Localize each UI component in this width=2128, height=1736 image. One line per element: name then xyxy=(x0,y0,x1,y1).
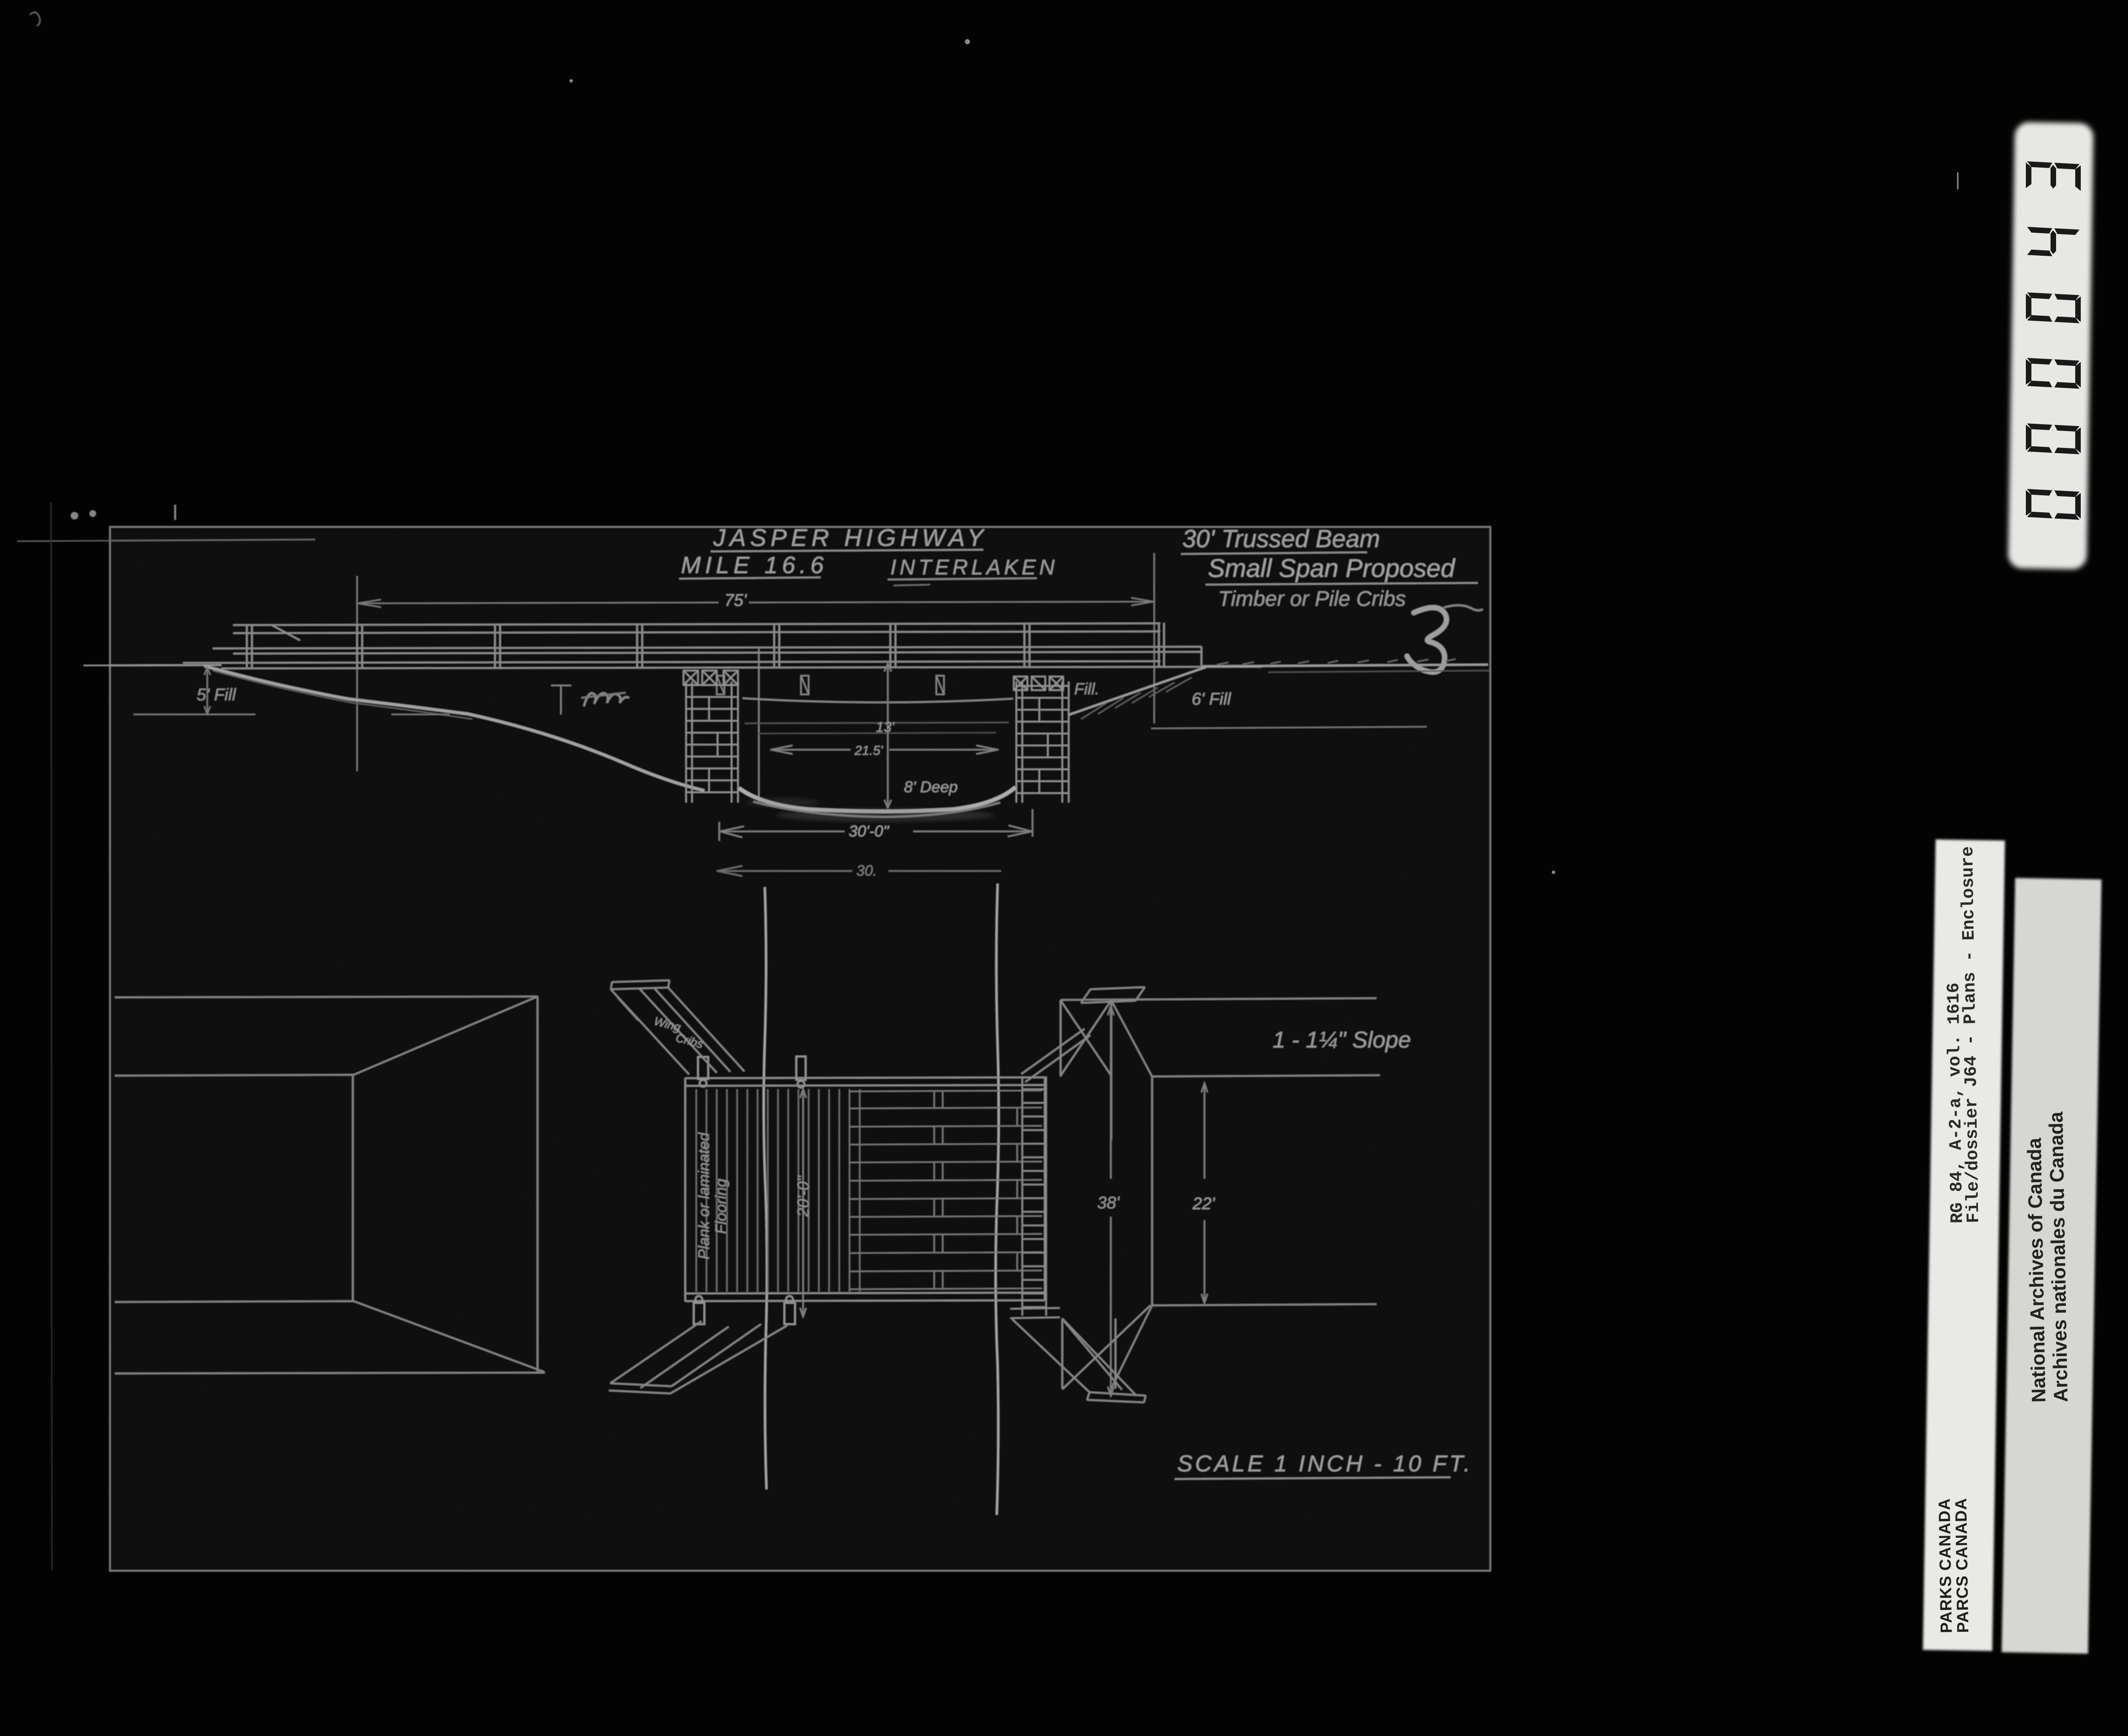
svg-text:PARCS CANADA: PARCS CANADA xyxy=(1952,1498,1972,1633)
